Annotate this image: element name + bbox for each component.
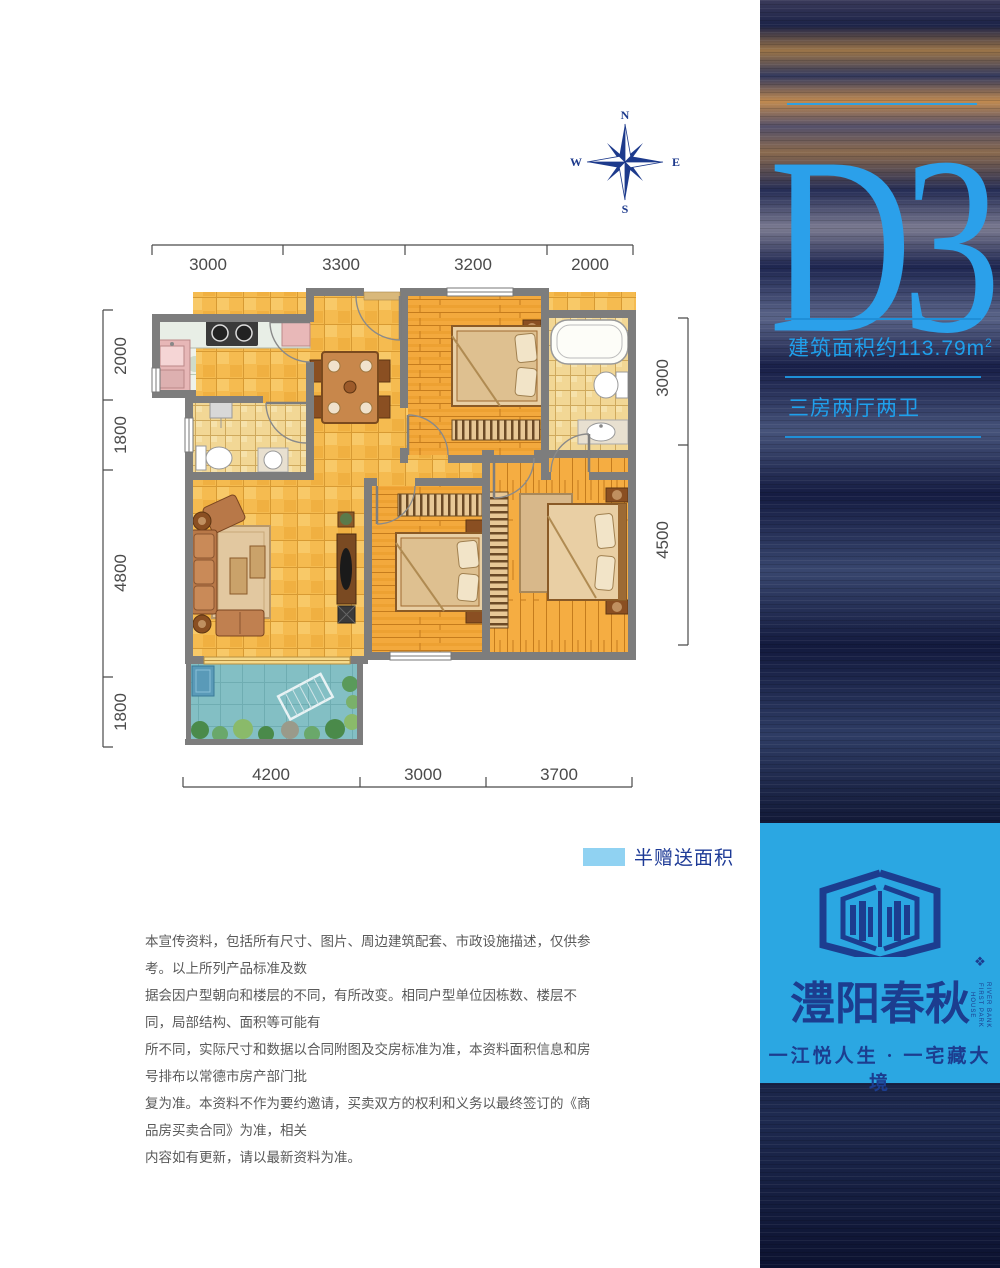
unit-area-sup: 2: [985, 336, 993, 350]
divider-line: [785, 436, 981, 438]
divider-line: [785, 318, 981, 320]
legend-swatch-half-gift: [583, 848, 625, 866]
dimension-top: 3000 3300 3200 2000: [152, 245, 633, 274]
disclaimer-line: 所不同，实际尺寸和数据以合同附图及交房标准为准，本资料面积信息和房号排布以常德市…: [145, 1036, 595, 1090]
divider-line: [785, 376, 981, 378]
svg-text:3000: 3000: [653, 359, 672, 397]
disclaimer-line: 据会因户型朝向和楼层的不同，有所改变。相同户型单位因栋数、楼层不同，局部结构、面…: [145, 982, 595, 1036]
bedroom-middle: [396, 494, 484, 623]
legend: 半赠送面积: [583, 843, 734, 870]
bedroom-top: [452, 320, 542, 440]
svg-text:3000: 3000: [189, 255, 227, 274]
svg-text:3200: 3200: [454, 255, 492, 274]
unit-area-text: 建筑面积约113.79m2: [788, 332, 993, 362]
svg-text:1800: 1800: [111, 693, 130, 731]
flower-ornament-icon: ❖: [974, 954, 986, 969]
dimension-right: 3000 4500: [653, 318, 688, 645]
legend-label: 半赠送面积: [634, 843, 734, 870]
brand-english-vertical: RIVER BANK FIRST PARK HOUSE: [968, 973, 992, 1037]
svg-text:2000: 2000: [571, 255, 609, 274]
brand-logo-block: 澧阳春秋 ❖ RIVER BANK FIRST PARK HOUSE 一江悦人生…: [760, 823, 1000, 1083]
svg-text:4500: 4500: [653, 521, 672, 559]
dimension-left: 2000 1800 4800 1800: [103, 310, 130, 747]
open-book-logo-icon: [805, 865, 955, 957]
brand-side-column: ❖ RIVER BANK FIRST PARK HOUSE: [968, 953, 992, 1042]
dining-table: [310, 352, 390, 423]
compass-e: E: [672, 155, 680, 169]
disclaimer-line: 内容如有更新，请以最新资料为准。: [145, 1144, 595, 1171]
brand-row: 澧阳春秋 ❖ RIVER BANK FIRST PARK HOUSE: [760, 967, 1000, 1032]
sidebar: D3 建筑面积约113.79m2 三房两厅两卫 澧阳春: [760, 0, 1000, 1268]
svg-text:2000: 2000: [111, 337, 130, 375]
compass-w: W: [570, 155, 582, 169]
compass-rose: N S E W: [570, 108, 680, 216]
svg-text:3700: 3700: [540, 765, 578, 784]
svg-text:4800: 4800: [111, 554, 130, 592]
svg-text:3300: 3300: [322, 255, 360, 274]
wardrobe-column: [488, 492, 508, 628]
disclaimer-line: 复为准。本资料不作为要约邀请，买卖双方的权利和义务以最终签订的《商品房买卖合同》…: [145, 1090, 595, 1144]
unit-area-value: 建筑面积约113.79m: [788, 337, 985, 360]
compass-s: S: [622, 202, 629, 216]
dimension-bottom: 4200 3000 3700: [183, 765, 632, 787]
compass-n: N: [621, 108, 630, 122]
disclaimer: 本宣传资料，包括所有尺寸、图片、周边建筑配套、市政设施描述，仅供参考。以上所列产…: [145, 928, 595, 1171]
svg-text:1800: 1800: [111, 416, 130, 454]
disclaimer-line: 本宣传资料，包括所有尺寸、图片、周边建筑配套、市政设施描述，仅供参考。以上所列产…: [145, 928, 595, 982]
unit-rooms-text: 三房两厅两卫: [788, 392, 920, 422]
brand-english-line: RIVER BANK: [985, 982, 991, 1028]
svg-text:4200: 4200: [252, 765, 290, 784]
brand-tagline: 一江悦人生 · 一宅藏大境: [760, 1041, 1000, 1095]
brand-name: 澧阳春秋: [790, 978, 970, 1029]
brand-english-line: FIRST PARK HOUSE: [969, 983, 983, 1028]
svg-text:3000: 3000: [404, 765, 442, 784]
